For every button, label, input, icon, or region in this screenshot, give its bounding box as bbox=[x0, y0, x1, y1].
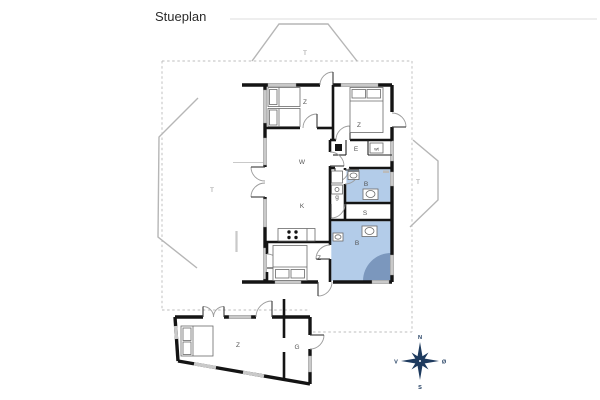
hallway-cabinets bbox=[332, 171, 343, 194]
deck-edge-lines bbox=[233, 163, 264, 253]
bathroom-top-label: B bbox=[364, 181, 368, 188]
terrace-right-label: T bbox=[416, 179, 420, 186]
terrace-right: T bbox=[410, 140, 438, 227]
terrace-top-label: T bbox=[303, 50, 307, 57]
terrace-top: T bbox=[252, 24, 357, 61]
bedroom-top-right-label: Z bbox=[357, 122, 361, 129]
bed-bottom bbox=[273, 246, 307, 281]
entry-label: E bbox=[354, 146, 359, 153]
annex-garage-label: G bbox=[294, 344, 299, 351]
storage-label: S bbox=[363, 210, 368, 217]
fixture-icon bbox=[335, 144, 342, 151]
bedroom-bottom-label: Z bbox=[317, 255, 321, 262]
annex-doors bbox=[203, 301, 324, 349]
annex-bed bbox=[181, 326, 213, 356]
floorplan-page: Stueplan T T T bbox=[0, 0, 600, 400]
bathroom-bottom-label: B bbox=[355, 240, 359, 247]
compass-north-label: N bbox=[418, 335, 422, 341]
compass-east-label: Ø bbox=[442, 360, 447, 366]
entry-closets: wt bbox=[335, 143, 383, 153]
bed-top-left-1 bbox=[268, 88, 300, 107]
compass-center-dot bbox=[419, 360, 421, 362]
compass-west-label: V bbox=[394, 360, 398, 366]
washer-label: wt bbox=[374, 147, 379, 152]
annex-bedroom-label: Z bbox=[236, 342, 240, 349]
kitchen-counter bbox=[278, 229, 315, 242]
page-title: Stueplan bbox=[155, 9, 206, 24]
bed-top-right bbox=[350, 88, 383, 133]
bed-top-left-2 bbox=[268, 109, 300, 127]
living-room-label: W bbox=[299, 159, 306, 166]
kitchen-label: K bbox=[300, 203, 305, 210]
compass-south-label: S bbox=[418, 385, 422, 391]
terrace-left-label: T bbox=[210, 187, 214, 194]
terrace-left: T bbox=[158, 98, 214, 268]
compass-rose: N S V Ø bbox=[394, 335, 447, 391]
hallway-label: g bbox=[335, 194, 339, 201]
floorplan-drawing: Stueplan T T T bbox=[0, 0, 600, 400]
bedroom-top-left-label: Z bbox=[303, 99, 307, 106]
